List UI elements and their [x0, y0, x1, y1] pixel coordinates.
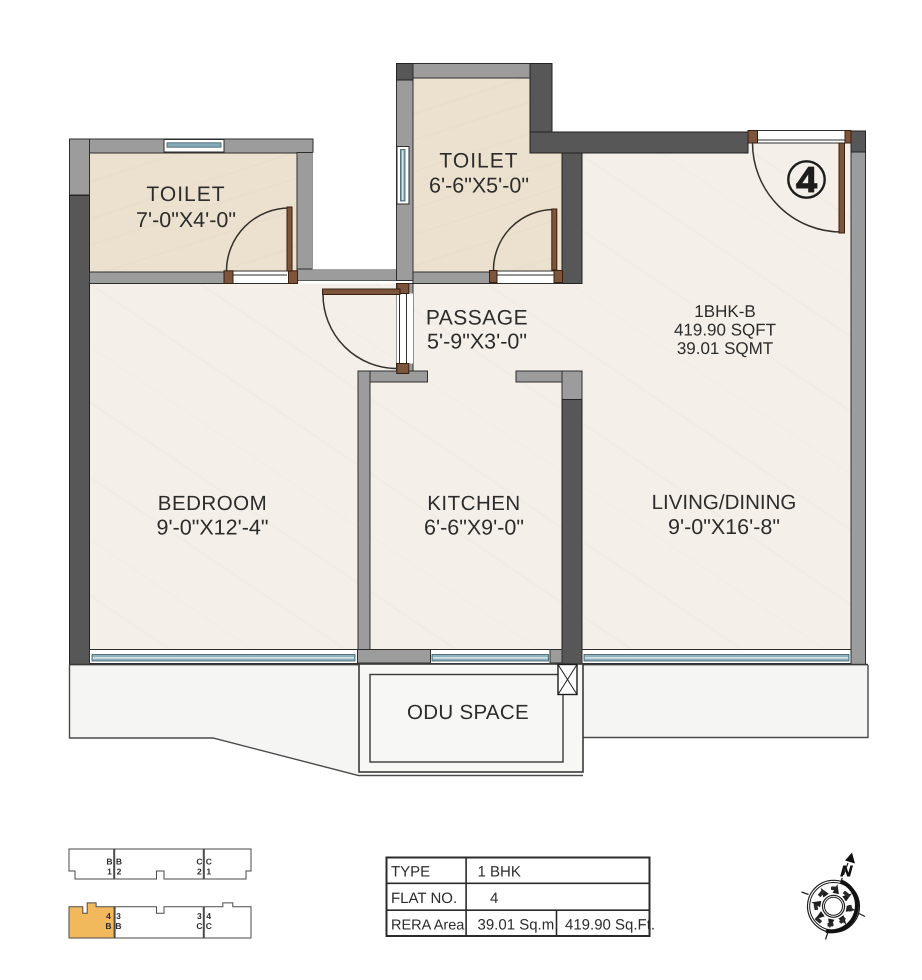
- svg-text:9'-0"X12'-4": 9'-0"X12'-4": [157, 516, 269, 540]
- svg-text:FLAT NO.: FLAT NO.: [391, 890, 457, 907]
- svg-text:RERA Area: RERA Area: [391, 918, 465, 934]
- svg-text:7'-0"X4'-0": 7'-0"X4'-0": [136, 208, 236, 232]
- svg-text:TYPE: TYPE: [391, 864, 430, 881]
- svg-text:B: B: [106, 857, 112, 867]
- svg-text:5'-9"X3'-0": 5'-9"X3'-0": [427, 330, 527, 354]
- svg-text:1: 1: [206, 867, 211, 877]
- svg-text:39.01 Sq.m.: 39.01 Sq.m.: [478, 917, 559, 934]
- svg-text:C: C: [196, 857, 202, 867]
- svg-text:TOILET: TOILET: [439, 150, 518, 173]
- svg-text:9'-0"X16'-8": 9'-0"X16'-8": [668, 515, 780, 539]
- svg-text:1: 1: [107, 867, 112, 877]
- svg-text:C: C: [206, 857, 212, 867]
- svg-text:ODU SPACE: ODU SPACE: [407, 701, 529, 724]
- svg-text:6'-6"X5'-0": 6'-6"X5'-0": [429, 174, 529, 198]
- svg-text:3: 3: [116, 911, 121, 921]
- svg-text:PASSAGE: PASSAGE: [426, 307, 528, 330]
- svg-text:4: 4: [106, 911, 111, 921]
- svg-text:419.90 Sq.Ft.: 419.90 Sq.Ft.: [565, 917, 655, 934]
- svg-text:TOILET: TOILET: [146, 183, 225, 206]
- svg-text:BEDROOM: BEDROOM: [158, 492, 267, 515]
- svg-text:39.01 SQMT: 39.01 SQMT: [677, 339, 773, 358]
- svg-text:419.90 SQFT: 419.90 SQFT: [674, 321, 776, 340]
- svg-text:4: 4: [490, 890, 498, 907]
- svg-text:C: C: [196, 921, 202, 931]
- svg-text:B: B: [116, 857, 122, 867]
- svg-text:LIVING/DINING: LIVING/DINING: [652, 491, 797, 514]
- svg-text:2: 2: [197, 867, 202, 877]
- svg-text:C: C: [206, 921, 212, 931]
- svg-text:B: B: [115, 921, 121, 931]
- svg-text:B: B: [105, 921, 111, 931]
- svg-text:2: 2: [117, 867, 122, 877]
- svg-text:1 BHK: 1 BHK: [478, 864, 521, 881]
- svg-text:3: 3: [197, 911, 202, 921]
- svg-text:6'-6"X9'-0": 6'-6"X9'-0": [424, 516, 524, 540]
- svg-text:1BHK-B: 1BHK-B: [694, 302, 755, 321]
- svg-text:KITCHEN: KITCHEN: [427, 492, 520, 515]
- svg-text:4: 4: [206, 911, 211, 921]
